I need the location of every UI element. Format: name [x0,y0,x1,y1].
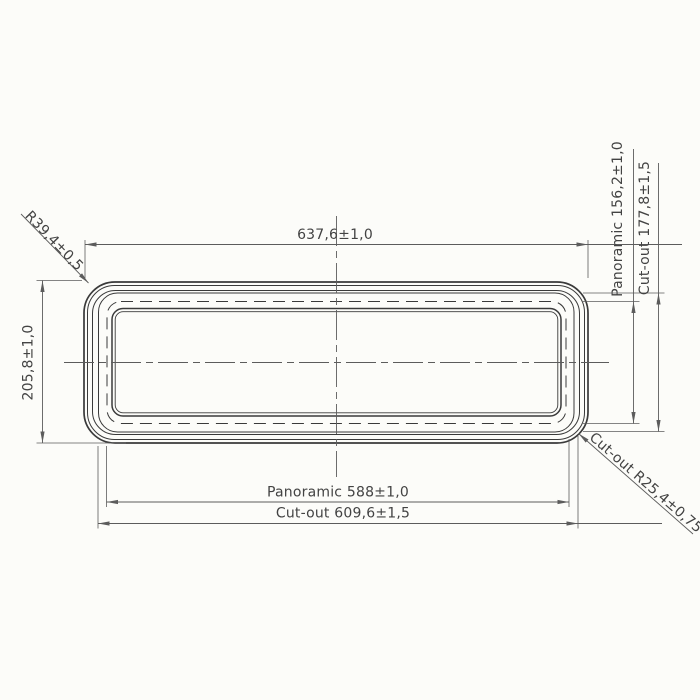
dim-overall-height-label: 205,8±1,0 [21,325,37,401]
dim-panoramic-width: Panoramic 588±1,0 [107,439,570,507]
dim-overall-width: 637,6±1,0 [85,227,682,278]
drawing-sheet: 637,6±1,0 205,8±1,0 Panoramic 156,2±1,0 … [0,0,700,700]
dim-corner-radius: R39,4±0,5 [21,208,89,283]
dim-panoramic-height-label: Panoramic 156,2±1,0 [610,141,626,297]
dim-panoramic-height: Panoramic 156,2±1,0 [583,141,640,423]
dim-cutout-radius: Cut-out R25,4±0,75 [579,430,700,537]
technical-drawing: 637,6±1,0 205,8±1,0 Panoramic 156,2±1,0 … [0,0,700,700]
dim-cutout-width: Cut-out 609,6±1,5 [98,436,662,529]
dim-overall-width-label: 637,6±1,0 [297,227,373,243]
dim-cutout-radius-label: Cut-out R25,4±0,75 [586,430,700,537]
dim-cutout-width-label: Cut-out 609,6±1,5 [276,506,410,522]
dim-panoramic-width-label: Panoramic 588±1,0 [267,485,409,501]
dim-cutout-height-label: Cut-out 177,8±1,5 [637,161,653,295]
dim-corner-radius-label: R39,4±0,5 [21,208,86,274]
